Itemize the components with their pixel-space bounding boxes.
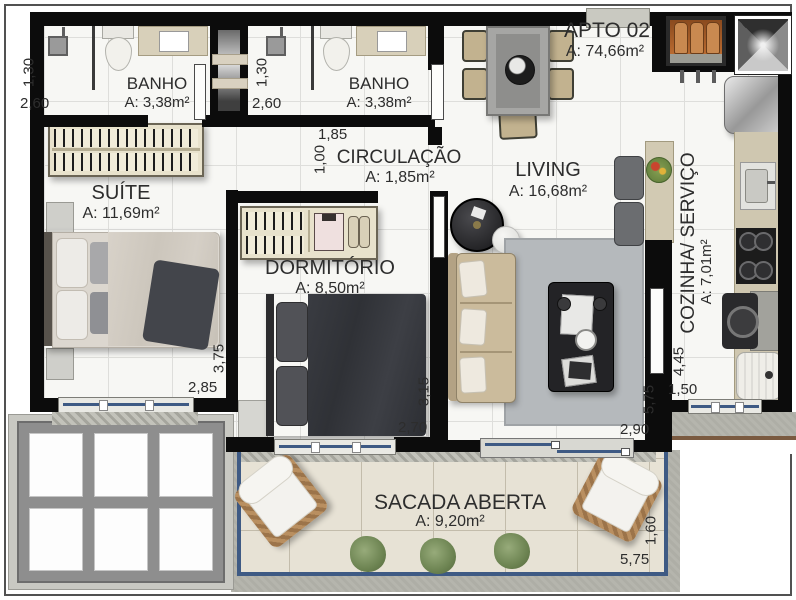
room-area-sacada: A: 9,20m²	[376, 514, 524, 531]
service-window	[688, 399, 762, 414]
room-label-dormitorio: DORMITÓRIO	[258, 258, 402, 279]
dim-banho1-height: 1,30	[21, 51, 38, 95]
shower-arm	[62, 27, 65, 38]
wall	[394, 437, 448, 452]
wall	[202, 115, 248, 127]
wall	[226, 437, 274, 452]
fruit-bowl-icon	[646, 157, 672, 183]
vanity-counter	[138, 26, 208, 56]
room-area-dormitorio: A: 8,50m²	[262, 281, 398, 298]
dim-sacada-width: 5,75	[620, 551, 649, 568]
bar-stool-icon	[614, 156, 644, 200]
vanity-counter	[356, 26, 426, 56]
wall	[428, 12, 444, 70]
service-slab	[672, 412, 796, 436]
folded-shirt-icon	[314, 213, 344, 251]
dim-cozinha-height: 4,45	[671, 340, 688, 384]
nightstand-icon	[46, 348, 74, 380]
dim-dormitorio-height: 3,15	[416, 370, 433, 414]
shower-arm	[280, 27, 283, 38]
wall	[448, 440, 484, 452]
room-area-suite: A: 11,69m²	[61, 206, 181, 223]
room-area-circulacao: A: 1,85m²	[340, 170, 460, 187]
room-label-living: LIVING	[488, 160, 608, 181]
room-label-circulacao: CIRCULAÇÃO	[336, 148, 462, 168]
room-label-suite: SUÍTE	[61, 183, 181, 204]
dim-suite-height: 3,75	[211, 337, 228, 381]
room-area-cozinha: A: 7,01m²	[699, 197, 715, 347]
laundry-tank-icon	[736, 352, 782, 400]
dim-banho1-width: 2,60	[20, 95, 49, 112]
door-leaf	[431, 64, 444, 120]
duct-shaft	[210, 26, 248, 115]
wall	[238, 191, 378, 203]
balcony-sliding-door	[480, 438, 634, 458]
plant-icon	[420, 538, 456, 574]
sofa-icon	[448, 253, 514, 401]
kitchen-sink-icon	[740, 162, 776, 210]
floor-plan: APTO 02 A: 74,66m² BANHO A: 3,38m² BANHO…	[0, 0, 796, 600]
centerpiece-icon	[505, 55, 535, 85]
wall	[778, 70, 792, 412]
wall	[428, 127, 442, 145]
suite-bed-icon	[44, 230, 220, 348]
bar-stool-icon	[614, 202, 644, 246]
apto-area: A: 74,66m²	[550, 44, 660, 61]
shower-partition	[92, 26, 95, 90]
dining-chair-icon	[462, 30, 488, 62]
dim-banho2-width: 2,60	[252, 95, 281, 112]
wall	[226, 190, 238, 412]
dining-chair-icon	[462, 68, 488, 100]
dim-dormitorio-width: 2,70	[398, 419, 427, 436]
dim-banho2-height: 1,30	[254, 51, 271, 95]
dim-living-height: 5,75	[641, 378, 658, 422]
window-sill	[52, 412, 198, 425]
room-area-banho2: A: 3,38m²	[322, 95, 436, 111]
pipe	[712, 70, 716, 83]
dining-table-icon	[486, 26, 550, 116]
dim-sacada-height: 1,60	[643, 509, 660, 553]
room-label-cozinha: COZINHA/ SERVIÇO	[679, 138, 699, 348]
shoes-icon	[348, 216, 359, 248]
dim-cozinha-width: 1,50	[668, 381, 697, 398]
wardrobe-icon	[48, 123, 204, 177]
fridge-icon	[724, 76, 780, 134]
exterior-area-right	[672, 440, 796, 454]
stove-icon	[736, 228, 776, 284]
dining-chair-icon	[548, 68, 574, 100]
pipe	[696, 70, 700, 83]
dim-suite-width: 2,85	[188, 379, 217, 396]
nightstand-icon	[238, 400, 268, 438]
room-area-banho1: A: 3,38m²	[100, 95, 214, 111]
apto-title: APTO 02	[552, 20, 662, 42]
vent-shaft-icon	[735, 16, 791, 74]
plant-icon	[350, 536, 386, 572]
sink-icon	[377, 31, 407, 52]
shoes-icon	[359, 216, 370, 248]
wardrobe-icon	[240, 206, 378, 260]
washer-icon	[722, 291, 778, 351]
dorm-bed-icon	[266, 294, 426, 436]
door-leaf	[433, 196, 445, 258]
coffee-table-icon	[548, 282, 614, 392]
dim-living-width: 2,90	[620, 421, 649, 438]
dim-circulacao-height: 1,00	[312, 138, 329, 182]
gas-heater-icon	[666, 16, 726, 66]
pergola-outer	[8, 414, 234, 590]
pergola-grid	[17, 421, 225, 583]
suite-window	[58, 397, 194, 413]
room-label-banho1: BANHO	[104, 75, 210, 93]
plant-icon	[494, 533, 530, 569]
room-label-sacada: SACADA ABERTA	[374, 492, 526, 514]
sliding-door-leaf	[650, 288, 664, 374]
sink-icon	[159, 31, 189, 52]
dorm-window	[274, 439, 396, 455]
shower-icon	[48, 36, 68, 56]
wall	[44, 115, 148, 127]
pipe	[680, 70, 684, 83]
room-area-living: A: 16,68m²	[488, 184, 608, 201]
shower-partition	[311, 26, 314, 90]
room-label-banho2: BANHO	[326, 75, 432, 93]
